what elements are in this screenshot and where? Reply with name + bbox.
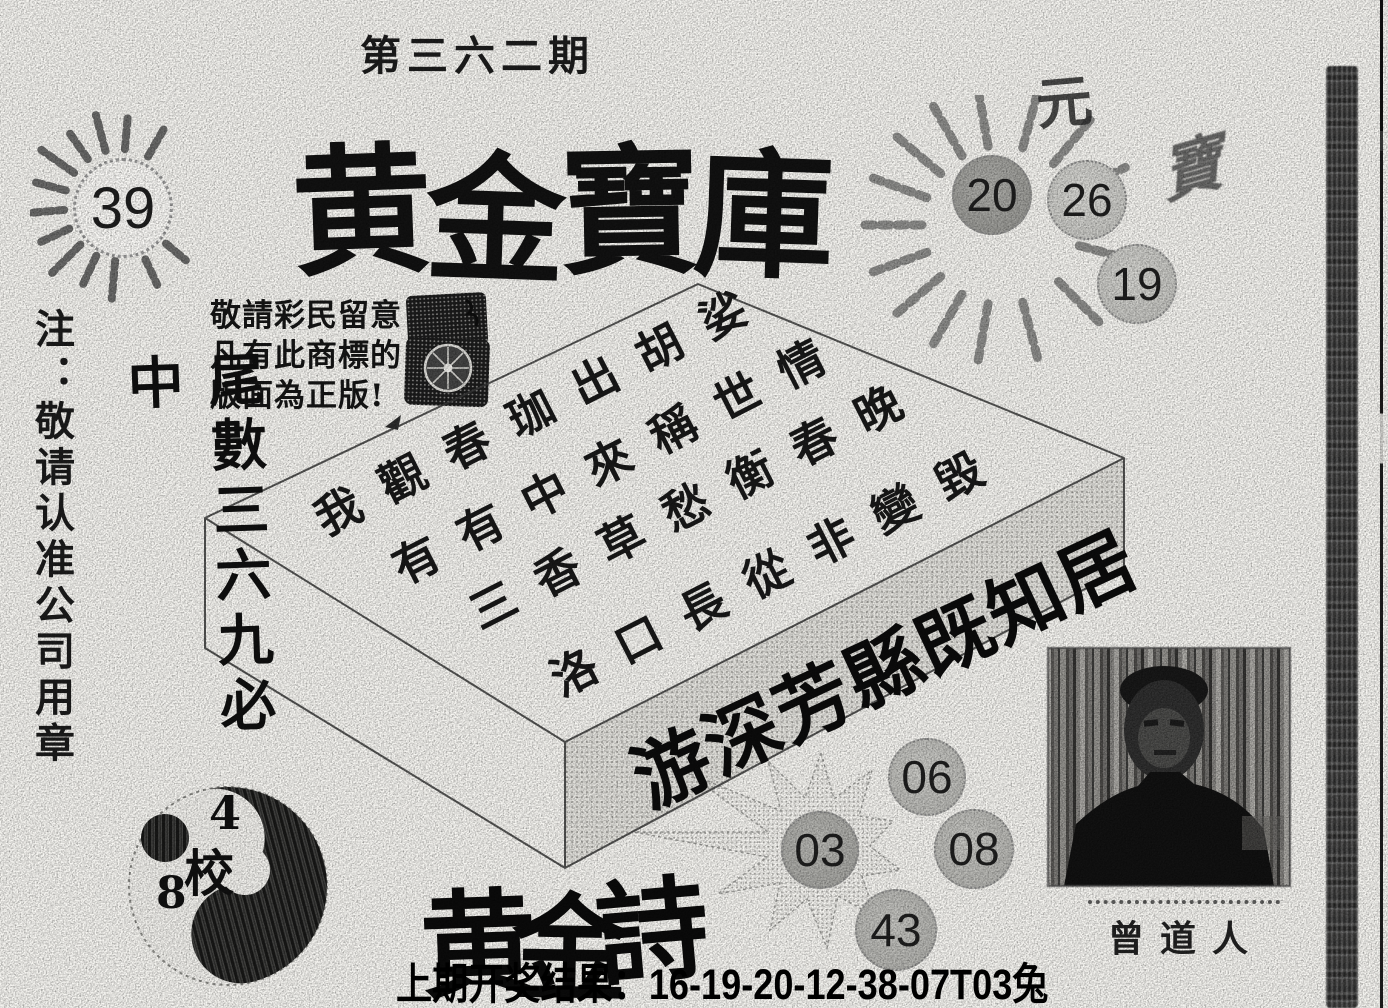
taiji-number-bottom: 8 [156,868,187,919]
lucky-number-circle-26: 26 [1047,160,1127,240]
lucky-number: 39 [91,175,156,242]
lucky-number-circle-20: 20 [952,155,1032,235]
previous-draw-result: 上期开奖结果：16-19-20-12-38-07T03兔 [396,950,1048,1008]
taiji-char-center: 校 [184,834,234,906]
lucky-number: 26 [1061,173,1112,227]
lucky-number-circle-19: 19 [1097,244,1177,324]
tail-number-tip: 尾數三六九必中 [110,349,288,804]
pick-circle-08: 08 [934,809,1014,889]
lucky-number: 19 [1111,257,1162,311]
company-seal-note: 注：敬请认准公司用章 [22,308,80,788]
lucky-number: 20 [966,168,1017,222]
lucky-number-circle-39: 39 [73,158,173,258]
caption-dotted-line [1088,900,1280,904]
portrait-caption: 曾道人 [1108,910,1264,962]
pick-number: 06 [901,750,952,804]
pick-number: 43 [870,903,921,957]
right-ink-stripe [1326,66,1358,1008]
page-edge-line [1380,0,1383,1008]
master-portrait-photo [1046,646,1292,888]
pick-circle-03: 03 [781,811,859,889]
pick-number: 03 [794,823,845,877]
lottery-tip-sheet: 第三六二期 黄金寶庫 元 寶 敬請彩民留意 凡有此商標的 版面為正版! [0,0,1388,1008]
pick-number: 08 [948,822,999,876]
taiji-number-top: 4 [209,786,241,840]
pick-circle-06: 06 [888,738,966,816]
